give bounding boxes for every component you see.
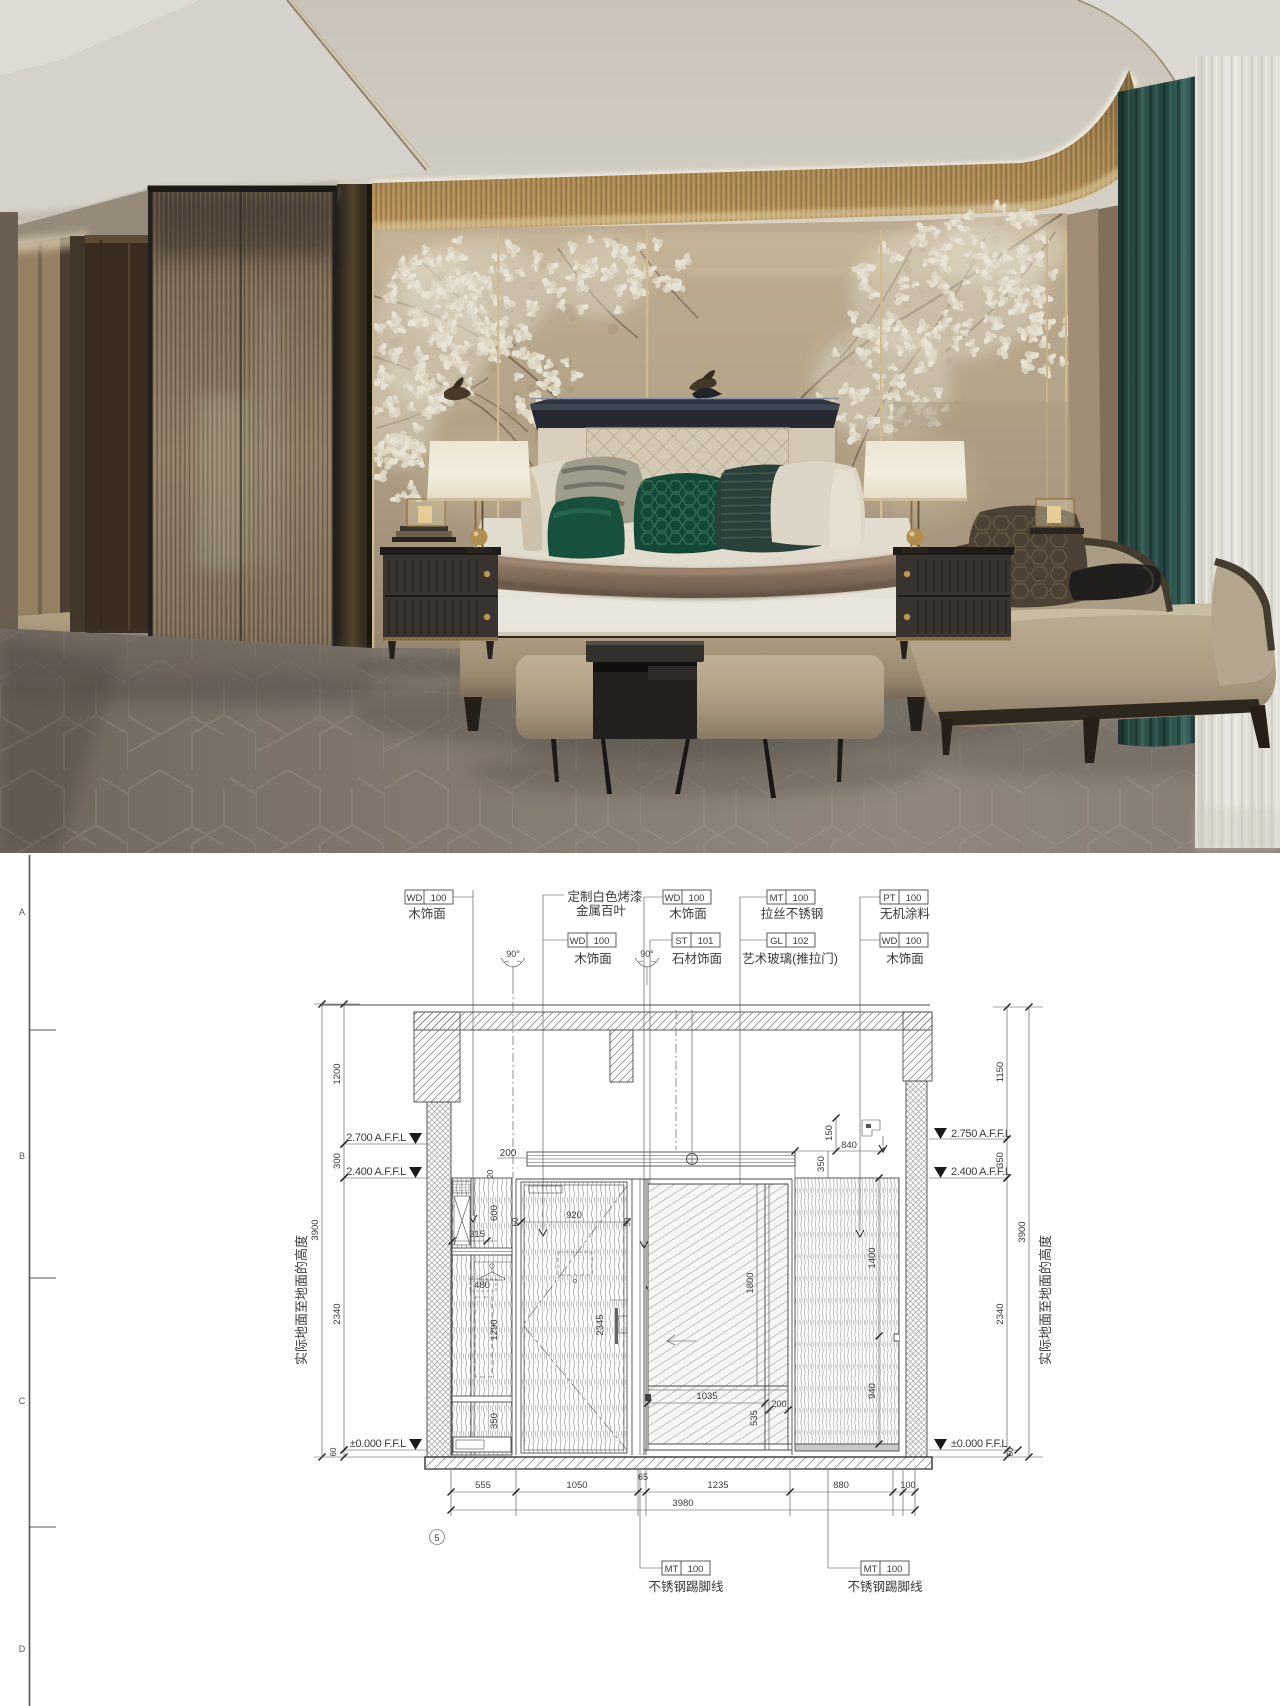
- svg-text:1150: 1150: [995, 1062, 1006, 1082]
- svg-text:150: 150: [824, 1125, 835, 1141]
- svg-text:315: 315: [469, 1229, 485, 1240]
- svg-text:1050: 1050: [566, 1480, 587, 1491]
- svg-text:3900: 3900: [1017, 1221, 1028, 1242]
- svg-text:920: 920: [566, 1210, 582, 1221]
- svg-text:MT: MT: [864, 1564, 878, 1575]
- svg-text:拉丝不锈钢: 拉丝不锈钢: [761, 906, 824, 921]
- svg-text:木饰面: 木饰面: [408, 907, 446, 921]
- svg-text:石材饰面: 石材饰面: [672, 952, 722, 966]
- svg-text:±0.000 F.F.L: ±0.000 F.F.L: [350, 1438, 406, 1450]
- svg-text:940: 940: [867, 1383, 878, 1399]
- svg-text:60: 60: [1006, 1447, 1015, 1456]
- svg-text:65: 65: [638, 1472, 648, 1482]
- svg-text:840: 840: [841, 1140, 857, 1151]
- svg-text:200: 200: [771, 1399, 786, 1409]
- svg-text:MT: MT: [665, 1564, 679, 1575]
- svg-text:艺术玻璃(推拉门): 艺术玻璃(推拉门): [742, 951, 838, 966]
- svg-text:不锈钢踢脚线: 不锈钢踢脚线: [648, 1579, 724, 1594]
- svg-text:5: 5: [434, 1533, 439, 1543]
- svg-text:100: 100: [887, 1564, 903, 1575]
- svg-text:定制白色烤漆: 定制白色烤漆: [567, 889, 642, 904]
- svg-text:350: 350: [489, 1413, 500, 1429]
- svg-text:100: 100: [906, 936, 922, 947]
- svg-text:1035: 1035: [696, 1391, 717, 1402]
- svg-text:102: 102: [793, 936, 809, 947]
- svg-text:1235: 1235: [707, 1480, 728, 1491]
- svg-text:90°: 90°: [506, 949, 520, 959]
- svg-text:2.750 A.F.F.L: 2.750 A.F.F.L: [951, 1128, 1011, 1140]
- svg-text:101: 101: [698, 936, 714, 947]
- svg-text:金属百叶: 金属百叶: [576, 903, 627, 918]
- svg-text:350: 350: [995, 1152, 1006, 1168]
- svg-text:A: A: [19, 907, 25, 917]
- svg-text:100: 100: [793, 893, 809, 904]
- svg-text:20: 20: [486, 1169, 495, 1178]
- svg-text:实际地面至地面的高度: 实际地面至地面的高度: [294, 1235, 309, 1365]
- svg-text:100: 100: [689, 893, 705, 904]
- svg-text:880: 880: [833, 1480, 849, 1491]
- svg-text:WD: WD: [882, 936, 898, 947]
- svg-text:1400: 1400: [867, 1247, 878, 1268]
- svg-text:2.700 A.F.F.L: 2.700 A.F.F.L: [346, 1132, 406, 1144]
- svg-text:无机涂料: 无机涂料: [880, 906, 931, 921]
- svg-text:WD: WD: [665, 893, 681, 904]
- svg-text:B: B: [19, 1151, 25, 1161]
- svg-text:木饰面: 木饰面: [574, 952, 612, 966]
- svg-text:100: 100: [900, 1480, 915, 1490]
- svg-text:2340: 2340: [332, 1303, 343, 1324]
- svg-text:ST: ST: [675, 936, 687, 947]
- svg-text:600: 600: [489, 1205, 500, 1221]
- svg-text:PT: PT: [883, 893, 895, 904]
- svg-text:90°: 90°: [640, 949, 654, 959]
- svg-text:2.400 A.F.F.L: 2.400 A.F.F.L: [346, 1166, 406, 1178]
- svg-text:1290: 1290: [489, 1319, 500, 1340]
- svg-text:50: 50: [511, 1217, 520, 1226]
- svg-text:3900: 3900: [310, 1219, 321, 1240]
- svg-text:D: D: [19, 1644, 26, 1654]
- svg-text:木饰面: 木饰面: [886, 952, 924, 966]
- svg-text:不锈钢踢脚线: 不锈钢踢脚线: [847, 1579, 923, 1594]
- svg-text:100: 100: [431, 893, 447, 904]
- svg-text:200: 200: [500, 1148, 517, 1159]
- svg-text:350: 350: [816, 1156, 827, 1172]
- svg-text:100: 100: [594, 936, 610, 947]
- svg-text:100: 100: [688, 1564, 704, 1575]
- svg-text:555: 555: [475, 1480, 491, 1491]
- svg-text:50: 50: [623, 1217, 632, 1226]
- svg-text:C: C: [19, 1396, 26, 1406]
- svg-text:60: 60: [329, 1447, 338, 1456]
- svg-text:100: 100: [906, 893, 922, 904]
- svg-text:GL: GL: [770, 936, 783, 947]
- svg-text:2340: 2340: [995, 1303, 1006, 1324]
- svg-text:WD: WD: [570, 936, 586, 947]
- svg-text:535: 535: [749, 1410, 760, 1426]
- svg-text:WD: WD: [407, 893, 423, 904]
- svg-text:±0.000 F.F.L: ±0.000 F.F.L: [951, 1438, 1007, 1450]
- svg-text:1200: 1200: [332, 1063, 343, 1084]
- svg-text:实际地面至地面的高度: 实际地面至地面的高度: [1038, 1235, 1053, 1365]
- svg-text:木饰面: 木饰面: [669, 907, 707, 921]
- svg-text:MT: MT: [770, 893, 784, 904]
- svg-text:300: 300: [332, 1153, 343, 1169]
- svg-text:1800: 1800: [745, 1272, 756, 1293]
- svg-text:3980: 3980: [672, 1498, 693, 1509]
- svg-text:2345: 2345: [595, 1314, 606, 1335]
- svg-text:480: 480: [474, 1280, 490, 1291]
